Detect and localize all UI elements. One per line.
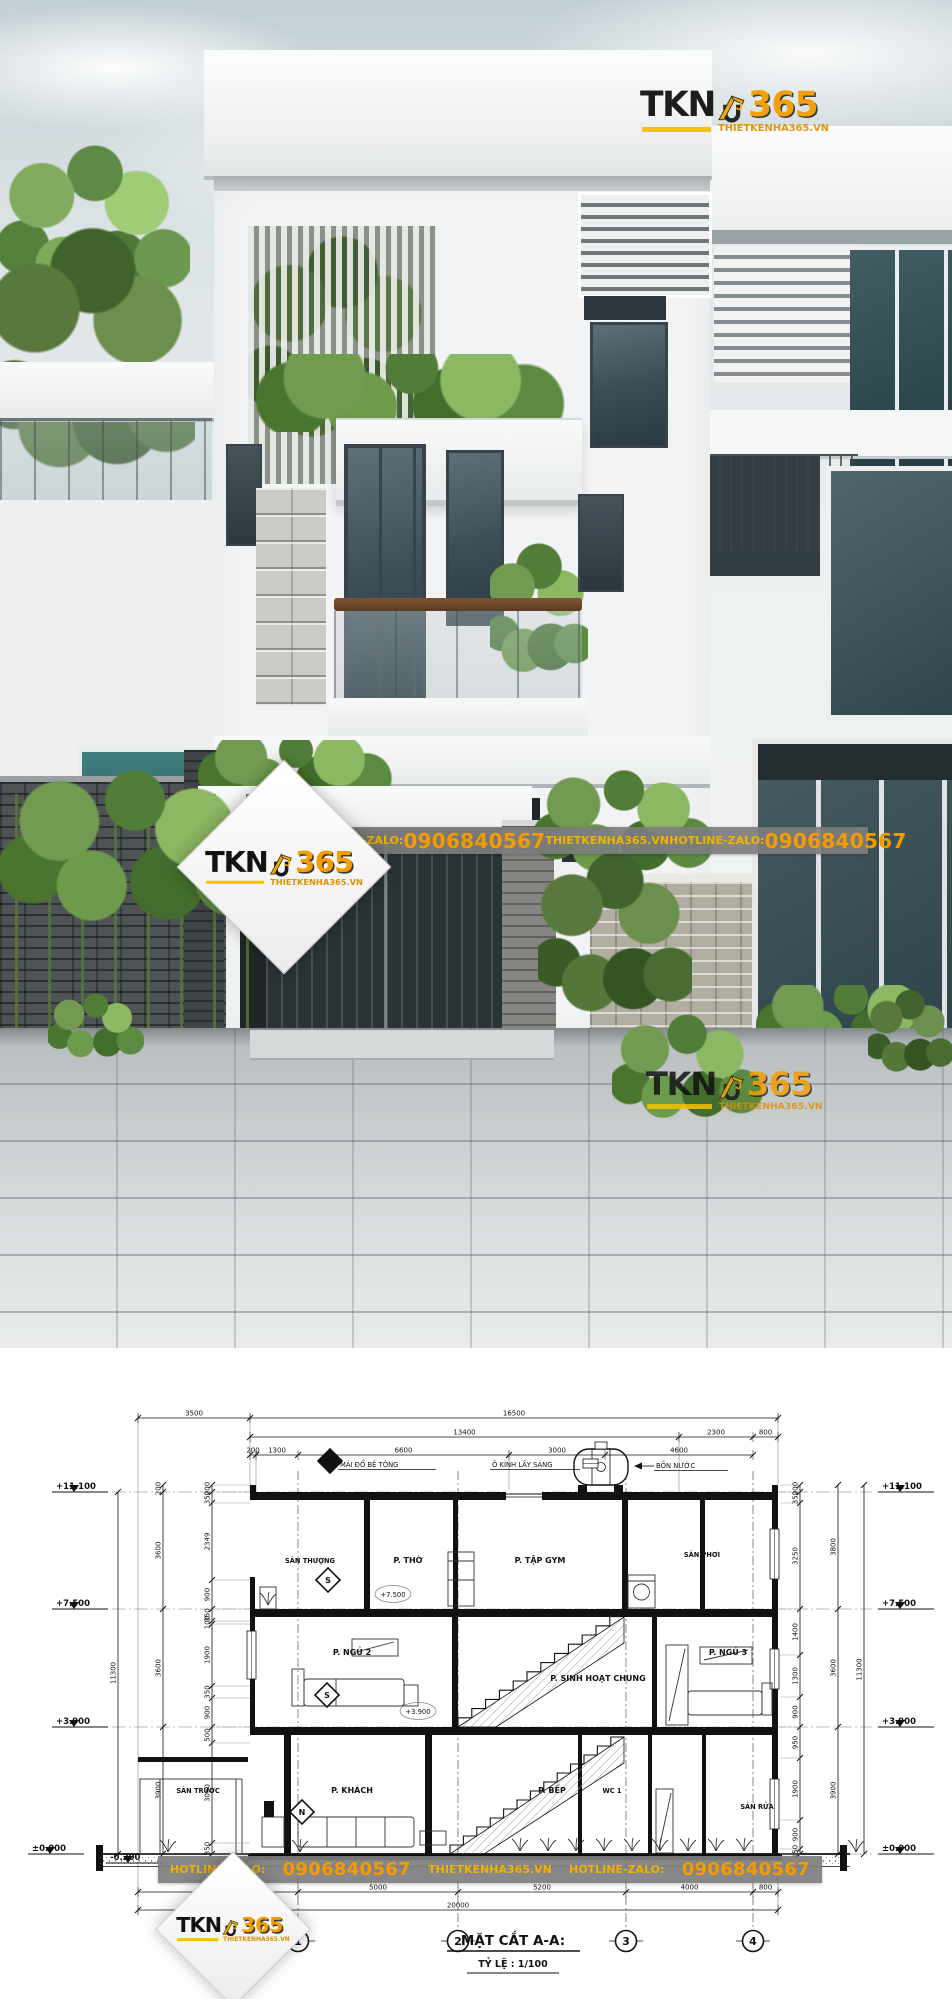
label: 100	[204, 1616, 212, 1629]
plant-icon	[512, 1838, 528, 1851]
label: SÂN RỬA	[740, 1801, 774, 1811]
right-louver-screen	[712, 244, 858, 384]
label: WC 1	[603, 1787, 622, 1795]
logo-underline	[642, 127, 711, 132]
label: 20000	[447, 1902, 469, 1910]
logo-text-tkn: TKN	[176, 1915, 221, 1936]
label: 900	[204, 1706, 212, 1719]
drawing-geometry	[284, 1735, 291, 1854]
hotline-watermark-strip-middle: HOTLINE-ZALO: 0906840567 THIETKENHA365.V…	[296, 827, 868, 854]
label: 900	[792, 1705, 800, 1718]
hotline-label: HOTLINE-ZALO:	[569, 1863, 664, 1876]
plant-icon	[540, 1838, 556, 1851]
plant-icon	[624, 1838, 640, 1851]
label: 350	[204, 1491, 212, 1504]
drawing-geometry	[262, 1817, 284, 1847]
house-render: HOTLINE-ZALO: 0906840567 THIETKENHA365.V…	[0, 0, 952, 1348]
roof-soffit-shadow	[214, 176, 710, 191]
logo-text-365: 365	[241, 1915, 283, 1936]
drawing-geometry	[448, 1552, 474, 1606]
logo-text-tkn: TKN	[646, 1068, 716, 1100]
logo-domain: THIETKENHA365.VN	[718, 124, 829, 134]
logo-text-tkn: TKN	[205, 848, 268, 877]
label: 3900	[830, 1782, 838, 1800]
plant-icon	[160, 1839, 176, 1852]
label: 3	[622, 1935, 630, 1948]
label: 3500	[185, 1410, 203, 1418]
label: MÁI ĐỔ BÊ TÔNG	[340, 1459, 398, 1469]
logo-underline	[206, 880, 264, 884]
drawing-geometry	[648, 1735, 652, 1854]
drawing-geometry	[452, 1617, 458, 1727]
label: 900	[204, 1588, 212, 1601]
label: ±0.000	[882, 1844, 916, 1854]
logo-underline	[177, 1939, 218, 1942]
f3-louver-inset	[578, 192, 712, 298]
drawing-geometry	[250, 1485, 256, 1500]
label: 13400	[453, 1429, 475, 1437]
label: 3600	[155, 1542, 163, 1560]
label: +7.500	[56, 1599, 90, 1609]
balcony-glass-railing	[334, 611, 582, 703]
drawing-geometry	[669, 1649, 685, 1721]
logo-domain: THIETKENHA365.VN	[223, 1937, 290, 1943]
hotline-phone: 0906840567	[283, 1859, 411, 1880]
watermark-domain: THIETKENHA365.VN	[545, 834, 669, 847]
balcony-wood-handrail	[334, 598, 582, 611]
plant-icon	[708, 1838, 724, 1851]
crane-icon	[268, 853, 294, 877]
plant-icon	[260, 1592, 276, 1605]
drawing-geometry	[364, 1500, 370, 1609]
tkn365-logo: TKN365 THIETKENHA365.VN	[205, 848, 363, 887]
label: 2300	[707, 1429, 725, 1437]
plant-icon	[848, 1839, 864, 1852]
label: 500	[204, 1728, 212, 1741]
drawing-geometry	[622, 1500, 628, 1609]
drawing-geometry	[595, 1442, 607, 1449]
label: 1400	[792, 1623, 800, 1641]
label: 1300	[268, 1447, 286, 1455]
drawing-geometry	[420, 1831, 446, 1845]
label: +11.100	[56, 1482, 96, 1492]
tkn365-logo-gate: TKN365 THIETKENHA365.VN	[646, 1068, 823, 1111]
shrub-far-right	[868, 986, 952, 1090]
label: TỶ LỆ : 1/100	[478, 1958, 548, 1970]
label: 2349	[204, 1533, 212, 1551]
drawing-geometry	[264, 1801, 274, 1817]
label: 5000	[369, 1884, 387, 1892]
f3-window	[590, 322, 668, 448]
section-drawing-svg: 3500165001340023008002001300660030004600…	[0, 1349, 952, 1999]
label: SÂN TRƯỚC	[176, 1786, 220, 1795]
label: 200	[246, 1447, 259, 1455]
roof-slab	[204, 50, 712, 180]
arrow-icon	[634, 1463, 642, 1470]
label: +7.500	[380, 1591, 405, 1599]
right-neighbor-f2-slab	[700, 410, 952, 459]
label: 11300	[856, 1658, 864, 1680]
plant-icon	[596, 1838, 612, 1851]
label: 200	[155, 1482, 163, 1495]
architecture-presentation: HOTLINE-ZALO: 0906840567 THIETKENHA365.V…	[0, 0, 952, 1999]
label: 4000	[681, 1884, 699, 1892]
drawing-geometry	[112, 1492, 872, 1854]
crane-icon	[222, 1919, 241, 1936]
label: 350	[204, 1685, 212, 1698]
tkn365-logo-top: TKN365 THIETKENHA365.VN	[640, 88, 829, 134]
label: 3250	[792, 1547, 800, 1565]
label: ±0.000	[32, 1844, 66, 1854]
drawing-geometry	[578, 1485, 587, 1492]
label: 11300	[110, 1662, 118, 1684]
label: +3.900	[405, 1708, 430, 1716]
hotline-phone: 0906840567	[682, 1859, 810, 1880]
label: BỒN NƯỚC	[656, 1460, 695, 1470]
label: -0.200	[110, 1853, 140, 1863]
label: 800	[759, 1429, 772, 1437]
hotline-label: HOTLINE-ZALO:	[669, 834, 764, 847]
logo-domain: THIETKENHA365.VN	[719, 1102, 823, 1111]
logo-text-365: 365	[747, 1068, 812, 1100]
label: S	[324, 1691, 330, 1700]
drawing-geometry	[578, 1735, 582, 1854]
drawing-geometry	[840, 1845, 847, 1871]
label: MẶT CẮT A-A:	[461, 1930, 565, 1949]
crane-icon	[716, 94, 748, 123]
drawing-geometry	[634, 1584, 650, 1600]
neighbor-lower-wall	[0, 500, 220, 790]
label: +3.900	[56, 1717, 90, 1727]
label: +3.900	[882, 1717, 916, 1727]
label: P. SINH HOẠT CHUNG	[550, 1674, 645, 1683]
plant-icon	[292, 1839, 308, 1852]
label: 3600	[830, 1659, 838, 1677]
section-drawing: 3500165001340023008002001300660030004600…	[0, 1349, 952, 1999]
shrub-left	[48, 992, 144, 1068]
drawing-geometry	[138, 1757, 248, 1762]
plant-icon	[680, 1838, 696, 1851]
drawing-geometry	[250, 1727, 778, 1735]
label: P. KHÁCH	[331, 1784, 373, 1795]
label: +7.500	[882, 1599, 916, 1609]
label: 1300	[792, 1667, 800, 1685]
drawing-geometry	[614, 1485, 623, 1492]
tkn365-logo: TKN365 THIETKENHA365.VN	[176, 1915, 290, 1943]
label: SÂN PHƠI	[684, 1550, 720, 1559]
label: +11.100	[882, 1482, 922, 1492]
label: SÂN THƯỢNG	[285, 1556, 335, 1565]
label: 350	[204, 1842, 212, 1855]
drawing-geometry	[628, 1575, 655, 1608]
label: 3600	[155, 1659, 163, 1677]
drawing-geometry	[506, 1490, 542, 1502]
drawing-geometry	[250, 1609, 778, 1617]
label: S	[325, 1576, 331, 1585]
crane-icon	[717, 1074, 746, 1101]
label: 900	[792, 1828, 800, 1841]
label: P. TẬP GYM	[515, 1555, 566, 1565]
label: 3000	[548, 1447, 566, 1455]
watermark-domain: THIETKENHA365.VN	[428, 1863, 552, 1876]
drawing-geometry	[425, 1735, 432, 1854]
label: 950	[792, 1736, 800, 1749]
label: 6600	[395, 1447, 413, 1455]
drawing-geometry	[453, 1500, 458, 1609]
label: 1900	[204, 1646, 212, 1664]
label: 3900	[155, 1782, 163, 1800]
label: 16500	[503, 1410, 525, 1418]
drawing-geometry	[688, 1691, 762, 1715]
hotline-phone: 0906840567	[403, 829, 545, 853]
label: 350	[792, 1491, 800, 1504]
plant-icon	[652, 1838, 668, 1851]
label: M	[326, 1457, 334, 1466]
plant-icon	[736, 1838, 752, 1851]
neighbor-balcony-slab	[0, 362, 218, 422]
f3-dark-canopy	[584, 296, 666, 320]
logo-domain: THIETKENHA365.VN	[270, 878, 363, 886]
drawing-geometry	[574, 1449, 628, 1485]
entrance-step	[250, 1030, 554, 1060]
logo-text-365: 365	[748, 88, 818, 123]
label: N	[299, 1808, 306, 1817]
drawing-geometry	[250, 1577, 255, 1609]
f2-side-window	[578, 494, 624, 592]
drawing-geometry	[652, 1617, 657, 1727]
label: 1900	[792, 1780, 800, 1798]
label: 5200	[533, 1884, 551, 1892]
f2-stone-cladding	[256, 488, 326, 706]
label: 800	[759, 1884, 772, 1892]
label: P. THỜ	[393, 1554, 422, 1565]
label: Ô KÍNH LẤY SÁNG	[492, 1459, 553, 1469]
logo-text-365: 365	[295, 848, 353, 877]
label: 3800	[830, 1538, 838, 1556]
label: 4600	[670, 1447, 688, 1455]
neighbor-balcony-railing	[0, 418, 212, 505]
drawing-geometry	[702, 1735, 706, 1854]
logo-text-tkn: TKN	[640, 88, 715, 123]
right-neighbor-f2-glass	[826, 466, 952, 720]
logo-underline	[647, 1104, 711, 1108]
hotline-phone: 0906840567	[764, 829, 906, 853]
label: 4	[749, 1935, 757, 1948]
